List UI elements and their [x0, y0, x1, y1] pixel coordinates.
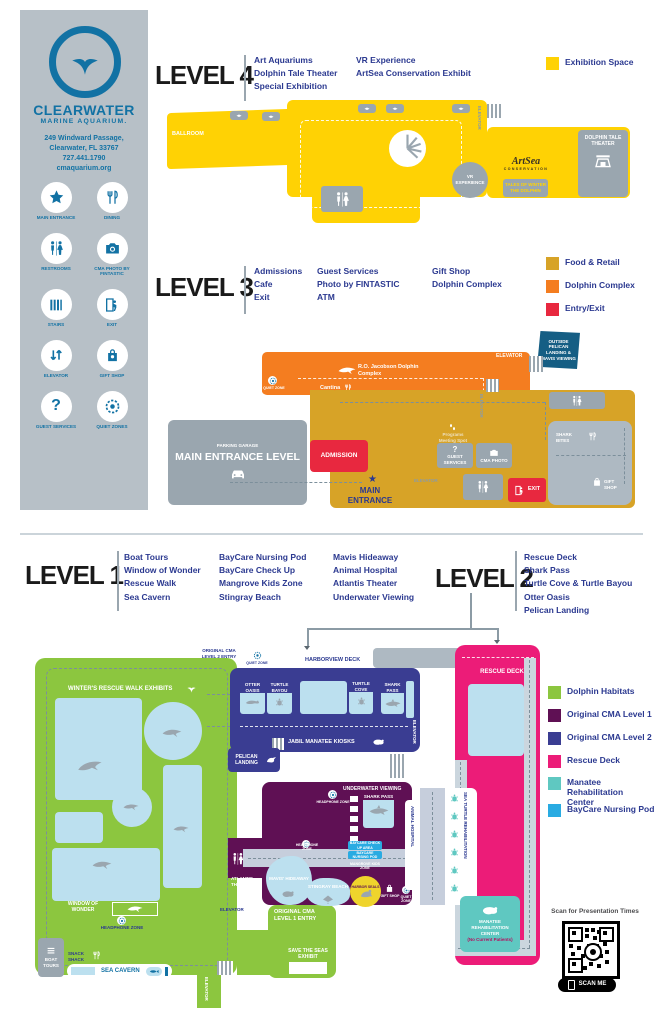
legend-dining: DINING — [86, 182, 139, 221]
kulturecity-icon — [268, 376, 277, 385]
stingray-icon — [322, 895, 334, 904]
exit-icon — [514, 485, 525, 496]
guest-services-box: ? GUEST SERVICES — [437, 443, 473, 468]
qr-finder — [568, 927, 583, 942]
feature-item: Boat Tours — [124, 551, 201, 564]
legend-original-cma-l2: Original CMA Level 2 — [548, 732, 652, 745]
level3-title: LEVEL 3 — [155, 272, 253, 303]
parking-garage-box: PARKING GARAGE MAIN ENTRANCE LEVEL — [168, 420, 307, 505]
green-bridge — [237, 930, 270, 975]
utensils-icon — [92, 951, 101, 960]
divider — [515, 551, 517, 611]
dolphin-tail-icon — [186, 683, 197, 694]
rescue-deck-pool — [468, 684, 524, 756]
admission-label: ADMISSION — [321, 452, 358, 460]
arrow-down-icon — [304, 646, 310, 653]
shark-pass-l2-pool: SHARK PASS — [381, 682, 404, 714]
ballroom-label: BALLROOM — [172, 131, 232, 138]
level4-features-col1: Art Aquariums Dolphin Tale Theater Speci… — [254, 54, 337, 94]
cma-photo-label: CMA PHOTO — [480, 458, 507, 464]
legend-main-entrance: MAIN ENTRANCE — [30, 182, 83, 221]
restroom-icon — [571, 395, 583, 407]
level3-features-col1: Admissions Cafe Exit — [254, 265, 302, 305]
level3-legend-dolphin: Dolphin Complex — [546, 280, 635, 293]
feature-item: Cafe — [254, 278, 302, 291]
camera-icon — [489, 448, 499, 458]
restroom-icon — [231, 852, 245, 866]
turtle-bayou-pool: TURTLE BAYOU — [267, 682, 292, 714]
dolphin-icon — [92, 860, 112, 870]
green-stub — [197, 975, 221, 1008]
quiet-zone-label: QUIET ZONE — [244, 661, 270, 665]
legend-swatch — [548, 804, 561, 817]
qr-caption: Scan for Presentation Times — [545, 908, 645, 916]
exhibit-pool — [300, 681, 347, 714]
save-the-seas-label: SAVE THE SEAS EXHIBIT — [284, 948, 332, 961]
legend-label: Rescue Deck — [567, 755, 620, 765]
turtle-cove-label: TURTLE COVE — [349, 681, 373, 692]
level4-legend: Exhibition Space — [546, 57, 634, 70]
vr-experience-circle: VR EXPERIENCE — [452, 162, 488, 198]
animal-hospital-label: ANIMAL HOSPITAL — [410, 806, 415, 886]
manatee-rehab-box: MANATEE REHABILITATION CENTER (No Curren… — [460, 896, 520, 952]
level3-legend-food: Food & Retail — [546, 257, 620, 270]
manatee-rehab-label: MANATEE REHABILITATION CENTER — [464, 919, 516, 936]
car-icon — [230, 466, 246, 482]
feature-item: ATM — [317, 291, 399, 304]
legend-label: Entry/Exit — [565, 303, 605, 313]
level4-features-col2: VR Experience ArtSea Conservation Exhibi… — [356, 54, 471, 80]
level2-connector-hline — [307, 628, 497, 630]
hydrophone-strip — [406, 681, 414, 718]
shark-icon — [385, 699, 401, 707]
level2-connector-dropR — [497, 628, 499, 640]
sidebar: CLEARWATER MARINE AQUARIUM. 249 Windward… — [20, 10, 148, 510]
mangrove-kids-label: MANGROVE KIDS ZONE — [346, 862, 384, 871]
feature-item: Atlantis Theater — [333, 577, 414, 590]
utensils-icon — [588, 432, 597, 441]
gift-bag-icon — [105, 348, 120, 363]
level1-title: LEVEL 1 — [25, 560, 123, 591]
level1-features-col3: Mavis Hideaway Animal Hospital Atlantis … — [333, 551, 414, 604]
elevator-vertical-label: ELEVATOR — [412, 720, 417, 752]
gift-bag-icon — [592, 477, 602, 487]
dolphin-icon — [76, 757, 104, 775]
legend-label: Original CMA Level 1 — [567, 709, 652, 719]
dolphin-tail-logo-icon — [68, 45, 102, 79]
gift-bag-icon — [385, 884, 394, 893]
qr-finder — [599, 927, 614, 942]
cma-photo-box: CMA PHOTO — [476, 443, 512, 468]
atlantis-theater-label: ATLANTIS THEATER — [231, 876, 261, 887]
quiet-zone-label: QUIET ZONE — [262, 386, 286, 390]
feature-item: VR Experience — [356, 54, 471, 67]
otter-oasis-pool: OTTER OASIS — [240, 682, 265, 714]
kulturecity-icon — [104, 398, 121, 415]
feature-item: Mangrove Kids Zone — [219, 577, 306, 590]
feature-item: Turtle Cove & Turtle Bayou — [524, 577, 632, 590]
baycare-nursing-chip: BAYCARE NURSING POD — [348, 851, 382, 859]
legend-label: Exhibition Space — [565, 57, 634, 67]
window-of-wonder-label: WINDOW OF WONDER — [58, 901, 108, 914]
elevator-shaft — [487, 104, 501, 118]
level3-legend-entry: Entry/Exit — [546, 303, 605, 316]
sea-cavern-label: SEA CAVERN — [101, 968, 140, 976]
entrance-path — [230, 482, 362, 483]
section-divider — [20, 533, 643, 535]
spiral-stairs — [389, 130, 426, 167]
legend-original-cma-l1: Original CMA Level 1 — [548, 709, 652, 722]
underwater-viewing-label: UNDERWATER VIEWING — [343, 786, 405, 792]
artsea-logo: ArtSea CONSERVATION — [503, 156, 549, 171]
tales-of-winter-box: TALES OF WINTER THE DOLPHIN — [503, 179, 548, 197]
qr-center-logo — [584, 943, 602, 961]
org-subtitle: MARINE AQUARIUM. — [20, 118, 148, 125]
walk-path — [545, 402, 546, 440]
baycare-checkup-label: BAYCARE CHECK UP AREA — [348, 841, 382, 850]
boat-tours-box: BOAT TOURS — [38, 938, 64, 977]
turtle-icon — [450, 794, 459, 803]
legend-swatch — [548, 755, 561, 768]
level2-title: LEVEL 2 — [435, 563, 533, 594]
headphone-zone-label: HEADPHONE ZONE — [316, 800, 350, 804]
legend-label: BayCare Nursing Pod — [567, 804, 654, 814]
exit-box: EXIT — [508, 478, 546, 502]
kulturecity-icon — [252, 650, 262, 660]
manatee-icon — [372, 738, 385, 746]
dolphin-pool — [55, 812, 103, 843]
harborview-deck-label: HARBORVIEW DECK — [305, 657, 369, 664]
restroom-box — [549, 392, 605, 409]
feature-item: Animal Hospital — [333, 564, 414, 577]
guest-services-label: GUEST SERVICES — [437, 454, 473, 465]
walk-path — [462, 657, 534, 658]
feature-item: Admissions — [254, 265, 302, 278]
org-name: CLEARWATER — [20, 102, 148, 118]
pelican-landing-box: PELICAN LANDING — [228, 748, 280, 772]
elevator-mid-label: ELEVATOR — [479, 394, 484, 430]
dolphin-icon — [173, 825, 189, 833]
level3-features-col2: Guest Services Photo by FINTASTIC ATM — [317, 265, 399, 305]
level4-title: LEVEL 4 — [155, 60, 253, 91]
level3-features-col3: Gift Shop Dolphin Complex — [432, 265, 502, 291]
walk-path — [556, 455, 626, 456]
otter-oasis-label: OTTER OASIS — [240, 682, 265, 693]
camera-icon — [104, 240, 121, 257]
phone-number: 727.441.1790 — [20, 154, 148, 164]
legend-baycare-pod: BayCare Nursing Pod — [548, 804, 654, 817]
legend-manatee-rehab: Manatee Rehabilitation Center — [548, 777, 643, 808]
address-line: 249 Windward Passage, — [20, 134, 148, 144]
seal-icon — [359, 889, 373, 898]
door-icon: ◂▸ — [262, 112, 280, 121]
legend-label: Dolphin Complex — [565, 280, 635, 290]
elevator-top-label: ELEVATOR — [496, 353, 522, 359]
pink-walk-right — [524, 658, 536, 950]
qr-code — [562, 921, 620, 979]
feature-item: Dolphin Tale Theater — [254, 67, 337, 80]
website-url: cmaquarium.org — [20, 164, 148, 174]
kulturecity-icon — [328, 790, 337, 799]
turtle-icon — [450, 830, 459, 839]
level1-features-col1: Boat Tours Window of Wonder Rescue Walk … — [124, 551, 201, 604]
feature-item: Otter Oasis — [524, 591, 632, 604]
restroom-icon — [48, 240, 65, 257]
quiet-zone-label: QUIET ZONE — [396, 895, 416, 904]
shark-icon — [369, 805, 389, 815]
level2-entry-label: ORIGINAL CMA LEVEL 2 ENTRY — [198, 648, 240, 659]
footprints-icon — [448, 423, 457, 432]
viewing-window — [350, 806, 358, 812]
fish-window — [146, 967, 162, 976]
legend-label: Dolphin Habitats — [567, 686, 635, 696]
walk-path — [624, 428, 625, 484]
turtle-icon — [450, 884, 459, 893]
sea-cavern-strip: SEA CAVERN — [67, 964, 172, 978]
shark-bites-label: SHARK BITES — [556, 432, 582, 443]
feature-item: Shark Pass — [524, 564, 632, 577]
theater-icon — [593, 152, 613, 172]
sea-cavern-window — [71, 967, 95, 975]
outside-pelican-flag: OUTSIDE PELICAN LANDING & MAVIS VIEWING — [537, 331, 580, 369]
utensils-icon — [105, 190, 120, 205]
dolphin-icon — [127, 905, 143, 913]
door-icon: ◂▸ — [358, 104, 376, 113]
fish-icon — [149, 969, 159, 974]
winters-rescue-label: WINTER'S RESCUE WALK EXHIBITS — [68, 686, 196, 694]
level1-entry-label: ORIGINAL CMA LEVEL 1 ENTRY — [274, 909, 330, 923]
main-entrance-level-label: MAIN ENTRANCE LEVEL — [175, 451, 300, 464]
turtle-icon — [275, 698, 284, 707]
elevator-low-label: ELEVATOR — [414, 478, 438, 484]
level2-connector-vline — [470, 593, 472, 628]
stairs-strip — [217, 961, 233, 975]
divider — [117, 551, 119, 611]
scan-me-pill: SCAN ME — [558, 978, 616, 992]
manatee-icon — [281, 890, 295, 898]
turtle-bayou-label: TURTLE BAYOU — [267, 682, 292, 693]
turtle-cove-pool: TURTLE COVE — [349, 681, 373, 714]
legend-swatch — [548, 709, 561, 722]
feature-item: BayCare Check Up — [219, 564, 306, 577]
baycare-checkup-chip: BAYCARE CHECK UP AREA — [348, 841, 382, 850]
door-icon: ◂▸ — [452, 104, 470, 113]
door-icon: ◂▸ — [230, 111, 248, 120]
food-retail-arm — [310, 390, 334, 445]
legend-restrooms: RESTROOMS — [30, 233, 83, 277]
feature-item: Gift Shop — [432, 265, 502, 278]
legend-guest-services: ?GUEST SERVICES — [30, 391, 83, 430]
qr-finder — [568, 958, 583, 973]
jabil-kiosks-label: JABIL MANATEE KIOSKS — [288, 739, 374, 746]
animal-hospital-strip: ANIMAL HOSPITAL — [405, 800, 420, 890]
turtle-icon — [450, 848, 459, 857]
stairs-icon — [48, 297, 64, 313]
theater-label: DOLPHIN TALE THEATER — [581, 135, 625, 148]
legend-stairs: STAIRS — [30, 289, 83, 328]
legend-exit: EXIT — [86, 289, 139, 328]
turtle-icon — [357, 697, 366, 706]
kulturecity-icon — [117, 916, 126, 925]
legend-swatch — [546, 257, 559, 270]
dolphin-pool-circle — [144, 702, 202, 760]
feature-item: Sea Cavern — [124, 591, 201, 604]
flag-label: OUTSIDE PELICAN LANDING & MAVIS VIEWING — [537, 337, 580, 364]
feature-item: Mavis Hideaway — [333, 551, 414, 564]
walk-path — [529, 660, 530, 948]
level1-features-col2: BayCare Nursing Pod BayCare Check Up Man… — [219, 551, 306, 604]
elevator-icon — [48, 347, 64, 363]
star-icon — [48, 189, 65, 206]
save-the-seas-box — [289, 962, 327, 974]
window-of-wonder-pool — [52, 848, 160, 901]
dolphin-tale-theater-box: DOLPHIN TALE THEATER — [578, 130, 628, 197]
walk-path — [248, 858, 406, 859]
window-viewing-box — [112, 902, 158, 916]
spiral-stairs-icon — [389, 130, 426, 167]
feature-item: Exit — [254, 291, 302, 304]
artsea-name: ArtSea — [503, 156, 549, 167]
feature-item: Art Aquariums — [254, 54, 337, 67]
divider — [244, 266, 246, 314]
feature-item: Photo by FINTASTIC — [317, 278, 399, 291]
legend-swatch — [546, 57, 559, 70]
exit-icon — [104, 297, 120, 313]
artsea-sub: CONSERVATION — [503, 167, 549, 171]
exit-label: EXIT — [528, 486, 540, 493]
gift-shop-label: GIFT SHOP — [604, 479, 628, 490]
legend-swatch — [548, 686, 561, 699]
manatee-icon — [481, 905, 499, 916]
walk-path — [340, 402, 545, 403]
dolphin-pool — [163, 765, 202, 888]
mavis-hideaway-label: MAVIS' HIDEAWAY — [268, 876, 310, 882]
legend-elevator: ELEVATOR — [30, 340, 83, 379]
tales-label: TALES OF WINTER THE DOLPHIN — [503, 182, 548, 193]
stingray-beach-label: STINGRAY BEACH — [308, 884, 348, 890]
main-entrance-label: MAIN ENTRANCE — [338, 486, 402, 507]
pelican-landing-label: PELICAN LANDING — [232, 754, 262, 767]
feature-item: ArtSea Conservation Exhibit — [356, 67, 471, 80]
dolphin-pool — [55, 698, 142, 800]
legend-dolphin-habitats: Dolphin Habitats — [548, 686, 635, 699]
walk-path — [432, 792, 433, 900]
sea-turtle-rehab-label: SEA TURTLE REHABILITATION — [463, 792, 468, 902]
sidebar-icon-legend: MAIN ENTRANCE DINING RESTROOMS CMA PHOTO… — [28, 182, 140, 429]
walk-path — [240, 726, 408, 727]
legend-label: Manatee Rehabilitation Center — [567, 777, 643, 808]
elevator-vertical-label: ELEVATOR — [204, 977, 209, 1007]
harborview-walkway — [373, 648, 461, 668]
legend-swatch — [548, 777, 561, 790]
legend-cma-photo: CMA PHOTO by FINTASTIC — [86, 233, 139, 277]
feature-item: Dolphin Complex — [432, 278, 502, 291]
harbor-seals-circle: HARBOR SEALS — [350, 876, 381, 907]
restroom-icon — [334, 191, 351, 208]
headphone-zone-label: HEADPHONE ZONE — [100, 925, 144, 931]
dolphin-icon — [123, 803, 139, 811]
restroom-box — [463, 474, 503, 500]
legend-swatch — [546, 280, 559, 293]
aquarium-map-page: CLEARWATER MARINE AQUARIUM. 249 Windward… — [0, 0, 663, 1024]
dolphin-icon — [162, 728, 182, 738]
turtle-icon — [450, 812, 459, 821]
legend-label: Food & Retail — [565, 257, 620, 267]
feature-item: Guest Services — [317, 265, 399, 278]
feature-item: Pelican Landing — [524, 604, 632, 617]
rescue-deck-label: RESCUE DECK — [476, 669, 528, 677]
restroom-icon — [476, 480, 490, 494]
turtle-icon — [450, 866, 459, 875]
shark-pass-label: SHARK PASS — [363, 794, 394, 800]
dolphin-icon — [338, 366, 356, 375]
legend-label: Original CMA Level 2 — [567, 732, 652, 742]
legend-swatch — [548, 732, 561, 745]
level2-connector-dropL — [307, 628, 309, 646]
elevator-shaft — [486, 379, 499, 392]
feature-item: BayCare Nursing Pod — [219, 551, 306, 564]
strip-endcap — [165, 967, 168, 976]
legend-swatch — [546, 303, 559, 316]
level2-features: Rescue Deck Shark Pass Turtle Cove & Tur… — [524, 551, 632, 617]
cma-logo — [49, 26, 121, 98]
manatee-note-label: (No Current Patients) — [467, 937, 512, 943]
pelican-icon — [265, 756, 277, 764]
stairs-strip — [390, 754, 406, 778]
feature-item: Rescue Deck — [524, 551, 632, 564]
viewing-window — [350, 826, 358, 832]
scan-me-label: SCAN ME — [579, 981, 607, 989]
elevator-shaft — [529, 356, 543, 372]
divider — [244, 55, 246, 101]
question-mark-icon: ? — [453, 445, 458, 454]
dock-icon — [45, 946, 57, 955]
boat-tours-label: BOAT TOURS — [38, 957, 64, 968]
admission-box: ADMISSION — [310, 440, 368, 472]
headphone-zone-label: HEADPHONE ZONE — [292, 843, 322, 852]
otter-icon — [245, 699, 260, 705]
feature-item: Underwater Viewing — [333, 591, 414, 604]
phone-icon — [568, 980, 575, 990]
shark-pass-l1-pool: SHARK PASS — [363, 794, 394, 828]
question-mark-icon: ? — [51, 397, 61, 415]
elevator-label: ELEVATOR — [220, 907, 244, 913]
viewing-window — [350, 816, 358, 822]
legend-rescue-deck: Rescue Deck — [548, 755, 620, 768]
legend-quiet-zones: QUIET ZONES — [86, 391, 139, 430]
feature-item: Special Exhibition — [254, 80, 337, 93]
feature-item: Window of Wonder — [124, 564, 201, 577]
restroom-box — [321, 186, 363, 212]
shark-pass-label: SHARK PASS — [381, 682, 404, 693]
snack-shack-label: SNACK SHACK — [68, 951, 92, 962]
viewing-window — [350, 796, 358, 802]
address-line: Clearwater, FL 33767 — [20, 144, 148, 154]
dolphin-pool-circle — [112, 787, 152, 827]
sea-turtle-strip: SEA TURTLE REHABILITATION — [447, 788, 477, 905]
legend-gift-shop: GIFT SHOP — [86, 340, 139, 379]
feature-item: Rescue Walk — [124, 577, 201, 590]
dolphin-complex-label: R.O. Jacobson Dolphin Complex — [358, 364, 438, 378]
programs-meeting-label: Programs Meeting Spot — [438, 432, 468, 443]
entrance-star-icon: ★ — [368, 474, 377, 485]
elevator-label: ELEVATOR — [477, 106, 482, 144]
feature-item: Stingray Beach — [219, 591, 306, 604]
door-icon: ◂▸ — [386, 104, 404, 113]
baycare-nursing-label: BAYCARE NURSING POD — [348, 851, 382, 860]
qr-modules — [585, 928, 589, 932]
parking-garage-label: PARKING GARAGE — [208, 443, 268, 449]
